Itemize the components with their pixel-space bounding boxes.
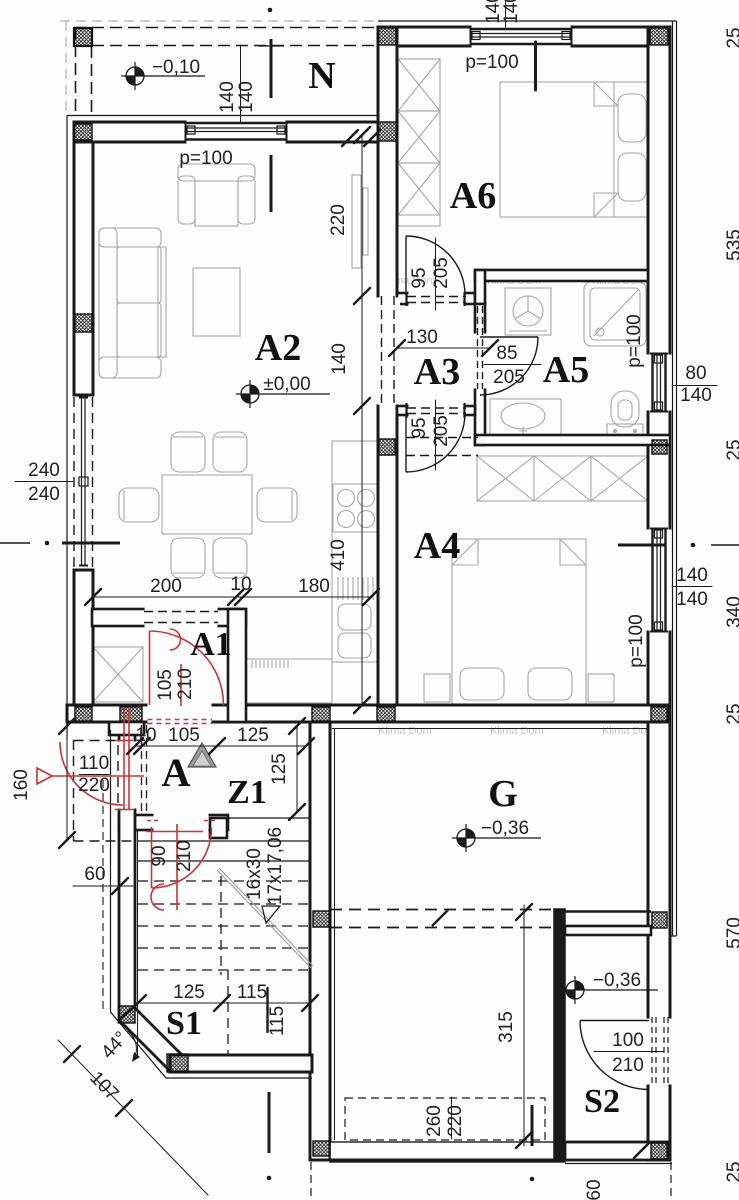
svg-text:A: A [162,750,191,795]
svg-text:10: 10 [230,574,251,595]
svg-text:±0,00: ±0,00 [263,374,310,395]
svg-text:S2: S2 [584,1083,620,1120]
svg-text:p=100: p=100 [626,614,647,667]
svg-text:535: 535 [724,229,739,261]
svg-text:410: 410 [328,539,349,571]
svg-text:A1: A1 [190,626,232,663]
svg-text:115: 115 [267,1006,288,1036]
svg-text:85: 85 [496,343,517,364]
svg-text:25: 25 [724,703,739,724]
svg-text:60: 60 [584,1179,605,1200]
svg-text:220: 220 [78,775,110,796]
svg-text:125: 125 [237,725,269,746]
svg-text:10: 10 [135,725,156,746]
svg-text:100: 100 [612,1030,644,1051]
svg-text:205: 205 [431,257,452,289]
svg-text:Klima Dom: Klima Dom [378,725,432,737]
svg-text:570: 570 [724,917,739,949]
svg-text:17x17,06: 17x17,06 [265,827,286,905]
svg-text:p=100: p=100 [465,52,518,73]
svg-text:Z1: Z1 [227,774,267,811]
svg-text:140: 140 [676,565,708,586]
svg-text:−0,36: −0,36 [481,818,529,839]
svg-text:240: 240 [28,460,60,481]
svg-text:200: 200 [150,576,182,597]
svg-text:25: 25 [724,1161,739,1182]
svg-text:16x30: 16x30 [244,848,265,900]
svg-text:125: 125 [269,753,290,785]
svg-text:315: 315 [496,1011,517,1043]
svg-text:80: 80 [685,363,706,384]
svg-text:125: 125 [173,982,205,1003]
svg-text:p=100: p=100 [179,148,232,169]
svg-text:205: 205 [493,367,525,388]
svg-text:25: 25 [724,439,739,460]
svg-text:240: 240 [28,484,60,505]
svg-text:220: 220 [328,204,349,236]
svg-text:140: 140 [236,81,257,113]
svg-text:A5: A5 [543,349,589,391]
svg-text:140: 140 [329,343,350,375]
svg-text:105: 105 [155,669,176,701]
svg-text:25: 25 [724,27,739,48]
svg-text:G: G [488,773,518,815]
svg-text:115: 115 [237,982,267,1003]
svg-text:A4: A4 [414,525,460,567]
svg-text:105: 105 [168,725,200,746]
svg-text:90: 90 [149,845,170,866]
svg-text:95: 95 [409,267,430,288]
svg-text:A3: A3 [414,351,460,393]
svg-text:−0,36: −0,36 [593,970,641,991]
svg-text:130: 130 [406,327,438,348]
svg-text:160: 160 [11,769,32,801]
svg-text:220: 220 [445,1105,466,1137]
svg-text:N: N [308,55,335,97]
svg-text:340: 340 [724,596,739,628]
svg-text:140: 140 [680,385,712,406]
svg-text:180: 180 [298,576,330,597]
svg-text:S1: S1 [166,1005,202,1042]
svg-text:140: 140 [217,81,238,113]
svg-text:210: 210 [175,668,196,700]
svg-text:−0,10: −0,10 [152,57,200,78]
svg-text:p=100: p=100 [624,314,645,367]
svg-text:Klima Dom: Klima Dom [490,725,544,737]
svg-text:A2: A2 [255,327,301,369]
svg-text:260: 260 [424,1105,445,1137]
svg-text:140: 140 [676,589,708,610]
svg-text:205: 205 [431,415,452,447]
svg-text:95: 95 [409,417,430,438]
svg-text:A6: A6 [450,175,496,217]
svg-text:60: 60 [84,864,105,885]
svg-text:210: 210 [612,1055,644,1076]
svg-text:110: 110 [79,753,109,774]
svg-text:140: 140 [501,0,522,24]
svg-text:210: 210 [174,840,195,872]
